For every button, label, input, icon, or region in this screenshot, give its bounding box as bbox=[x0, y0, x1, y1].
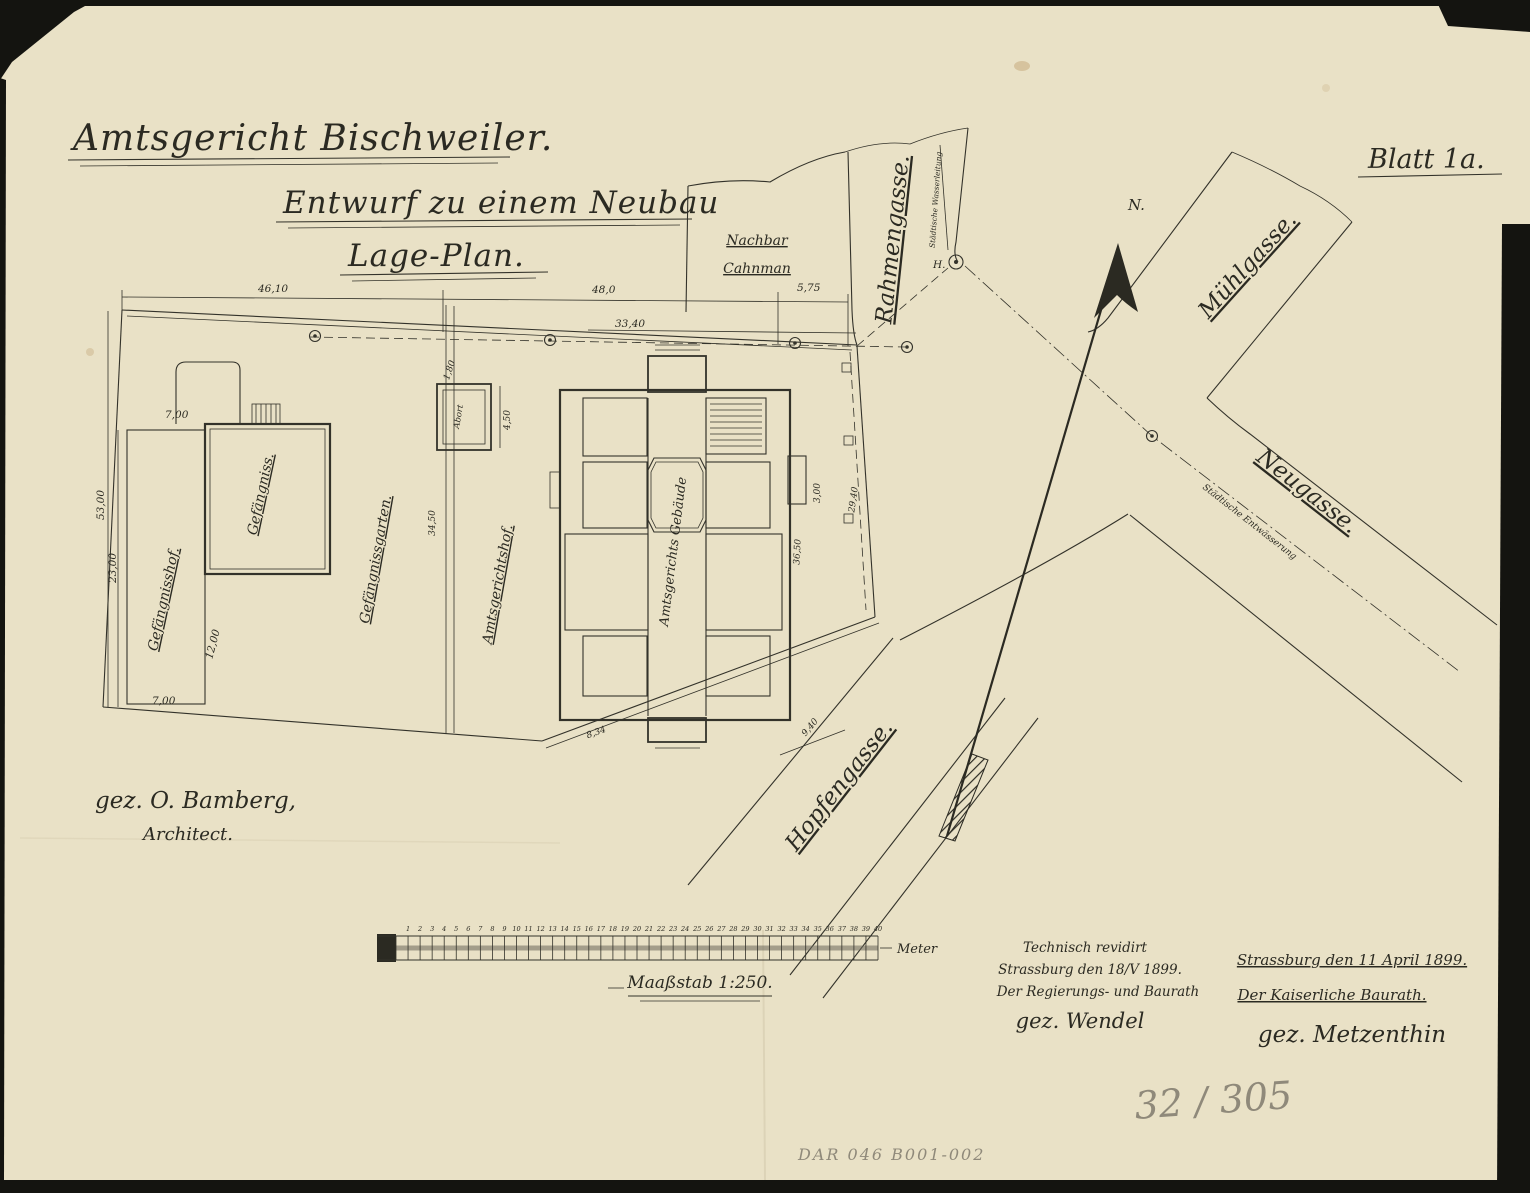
site-plan-drawing: Amtsgericht Bischweiler. Entwurf zu eine… bbox=[0, 0, 1530, 1193]
dim-left-inner: 23,00 bbox=[107, 553, 119, 584]
scale-tick-number-17: 17 bbox=[597, 925, 606, 933]
paper-stain bbox=[1014, 61, 1030, 71]
dim-hof-bottom: 7,00 bbox=[152, 695, 176, 707]
dim-garten: 34,50 bbox=[428, 510, 438, 536]
paper-stain bbox=[1322, 84, 1330, 92]
scale-unit-label: Meter bbox=[896, 942, 938, 957]
scale-tick-number-4: 4 bbox=[441, 925, 446, 933]
architect-title: Architect. bbox=[141, 824, 233, 845]
scale-tick-number-15: 15 bbox=[573, 925, 581, 933]
prison-stairs bbox=[252, 404, 280, 424]
scale-tick-number-3: 3 bbox=[430, 925, 434, 933]
scale-caption: Maaßstab 1:250. bbox=[626, 973, 772, 993]
scale-tick-number-37: 37 bbox=[838, 925, 847, 933]
scale-tick-number-18: 18 bbox=[609, 925, 617, 933]
scale-tick-number-29: 29 bbox=[740, 925, 749, 933]
scale-tick-number-26: 26 bbox=[704, 925, 713, 933]
scale-tick-number-38: 38 bbox=[850, 925, 858, 933]
dim-left-outer: 53,00 bbox=[95, 490, 107, 520]
dim-top-inner: 33,40 bbox=[615, 318, 645, 330]
scale-tick-number-39: 39 bbox=[862, 925, 870, 933]
scale-tick-number-19: 19 bbox=[621, 925, 629, 933]
dim-gap-right: 3,00 bbox=[813, 483, 823, 503]
scale-tick-number-10: 10 bbox=[512, 925, 520, 933]
scale-tick-number-40: 40 bbox=[873, 925, 882, 933]
scale-tick-number-32: 32 bbox=[777, 925, 785, 933]
scale-tick-number-28: 28 bbox=[728, 925, 737, 933]
scale-tick-number-23: 23 bbox=[668, 925, 677, 933]
scale-tick-number-2: 2 bbox=[417, 925, 422, 933]
title-line1: Amtsgericht Bischweiler. bbox=[70, 118, 553, 159]
scale-tick-number-21: 21 bbox=[644, 925, 653, 933]
scale-tick-number-14: 14 bbox=[561, 925, 569, 933]
scale-tick-number-12: 12 bbox=[536, 925, 544, 933]
neighbor-label-line2: Cahnman bbox=[723, 261, 791, 277]
scale-tick-number-36: 36 bbox=[826, 925, 834, 933]
scale-tick-number-30: 30 bbox=[753, 925, 761, 933]
revision-line3: Der Regierungs- und Baurath bbox=[996, 984, 1200, 1000]
sheet-label: Blatt 1a. bbox=[1367, 144, 1485, 175]
hydrant-label: H. bbox=[932, 259, 946, 271]
dim-hof-top: 7,00 bbox=[165, 409, 189, 421]
scale-tick-number-11: 11 bbox=[524, 925, 532, 933]
archive-code-pencil: DAR 046 B001-002 bbox=[797, 1145, 985, 1164]
scale-tick-number-24: 24 bbox=[680, 925, 689, 933]
approval-signature: gez. Metzenthin bbox=[1258, 1022, 1446, 1048]
dim-abort-h: 4,50 bbox=[503, 410, 513, 431]
scale-tick-number-27: 27 bbox=[716, 925, 726, 933]
paper-stain bbox=[86, 348, 94, 356]
scale-tick-number-9: 9 bbox=[502, 925, 506, 933]
architect-signature: gez. O. Bamberg, bbox=[95, 788, 296, 814]
scale-tick-number-25: 25 bbox=[692, 925, 701, 933]
paper-background bbox=[0, 0, 1530, 1193]
title-line3: Lage-Plan. bbox=[347, 238, 525, 274]
dim-right-lower: 36,50 bbox=[792, 538, 803, 565]
scale-tick-number-6: 6 bbox=[466, 925, 470, 933]
neighbor-label-line1: Nachbar bbox=[725, 233, 789, 249]
scale-tick-number-8: 8 bbox=[490, 925, 494, 933]
scale-tick-number-16: 16 bbox=[585, 925, 593, 933]
scale-tick-number-20: 20 bbox=[632, 925, 641, 933]
dim-top-left: 46,10 bbox=[257, 283, 288, 295]
scale-tick-number-5: 5 bbox=[454, 925, 458, 933]
title-line2: Entwurf zu einem Neubau bbox=[282, 185, 719, 221]
scale-tick-number-31: 31 bbox=[765, 925, 773, 933]
dim-top-right: 5,75 bbox=[797, 282, 821, 294]
scanned-site-plan-sheet: Amtsgericht Bischweiler. Entwurf zu eine… bbox=[0, 0, 1530, 1193]
approval-line2: Der Kaiserliche Baurath. bbox=[1236, 986, 1426, 1004]
scale-tick-number-34: 34 bbox=[802, 925, 810, 933]
scale-tick-number-22: 22 bbox=[656, 925, 665, 933]
revision-line1: Technisch revidirt bbox=[1023, 940, 1147, 956]
scale-tick-number-33: 33 bbox=[790, 925, 798, 933]
revision-signature: gez. Wendel bbox=[1016, 1009, 1145, 1033]
approval-line1: Strassburg den 11 April 1899. bbox=[1237, 951, 1467, 969]
scale-tick-number-13: 13 bbox=[549, 925, 557, 933]
revision-line2: Strassburg den 18/V 1899. bbox=[998, 962, 1182, 978]
dim-top-mid: 48,0 bbox=[591, 284, 616, 296]
north-label: N. bbox=[1127, 196, 1145, 214]
scale-tick-number-35: 35 bbox=[814, 925, 822, 933]
scale-tick-number-1: 1 bbox=[406, 925, 410, 933]
